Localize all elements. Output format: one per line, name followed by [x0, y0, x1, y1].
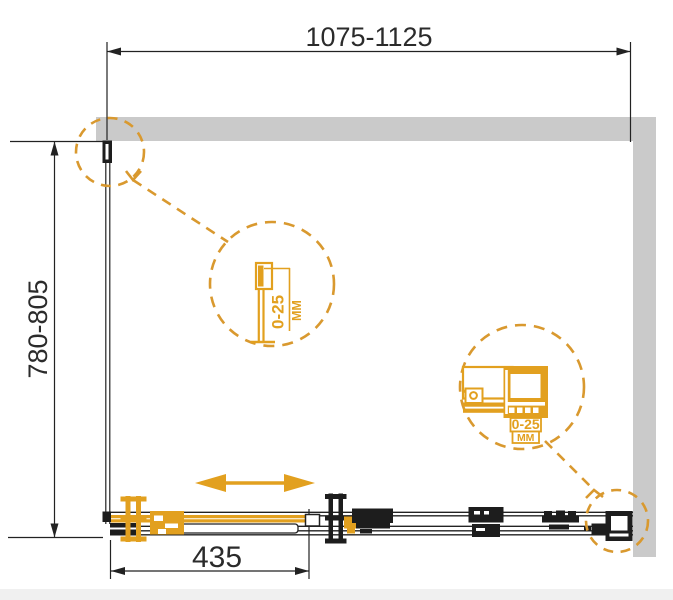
arrowhead-left-icon: [107, 48, 121, 56]
leader-line-front: [545, 441, 594, 490]
bottom-shadow-band: [0, 589, 673, 600]
fixed-roller-block: [469, 507, 504, 537]
door-width-dimension-label: 435: [192, 541, 242, 574]
screw-hole-icon: [470, 392, 477, 399]
arrowhead-left-icon: [111, 567, 125, 575]
arrowhead-up-icon: [51, 142, 59, 156]
fixed-panel-hardware: [325, 494, 633, 544]
drawing-canvas: 1075-1125 780-805 435: [0, 0, 673, 600]
side-glass-panel: [103, 141, 113, 525]
detail-side-range-label: 0-25: [269, 295, 288, 329]
callouts: [76, 118, 648, 552]
leader-fork-front: [586, 490, 603, 498]
detail-side-profile-drawing: 0-25 MM: [251, 263, 304, 342]
door-leading-edge: [306, 515, 320, 527]
right-wall: [633, 141, 656, 557]
slide-direction-arrow-icon: [195, 474, 315, 492]
width-dimension-label: 1075-1125: [305, 22, 432, 52]
detail-front-range-label: 0-25: [512, 416, 540, 432]
wall-profile-bottom-right: [606, 511, 633, 541]
arrowhead-right-icon: [295, 567, 309, 575]
door-guide-block: [150, 511, 184, 535]
arrowhead-right-icon: [617, 48, 631, 56]
center-bracket: [325, 494, 347, 544]
leader-line-side: [133, 180, 228, 242]
arrowhead-down-icon: [51, 524, 59, 538]
top-wall: [96, 117, 656, 141]
shower-enclosure-drawing: 1075-1125 780-805 435: [0, 0, 673, 600]
detail-side-unit-label: MM: [290, 300, 304, 321]
detail-front-unit-label: MM: [517, 432, 535, 444]
detail-front-profile-drawing: 0-25 MM: [463, 366, 548, 444]
walls: [96, 117, 656, 557]
depth-dimension-label: 780-805: [23, 279, 53, 378]
